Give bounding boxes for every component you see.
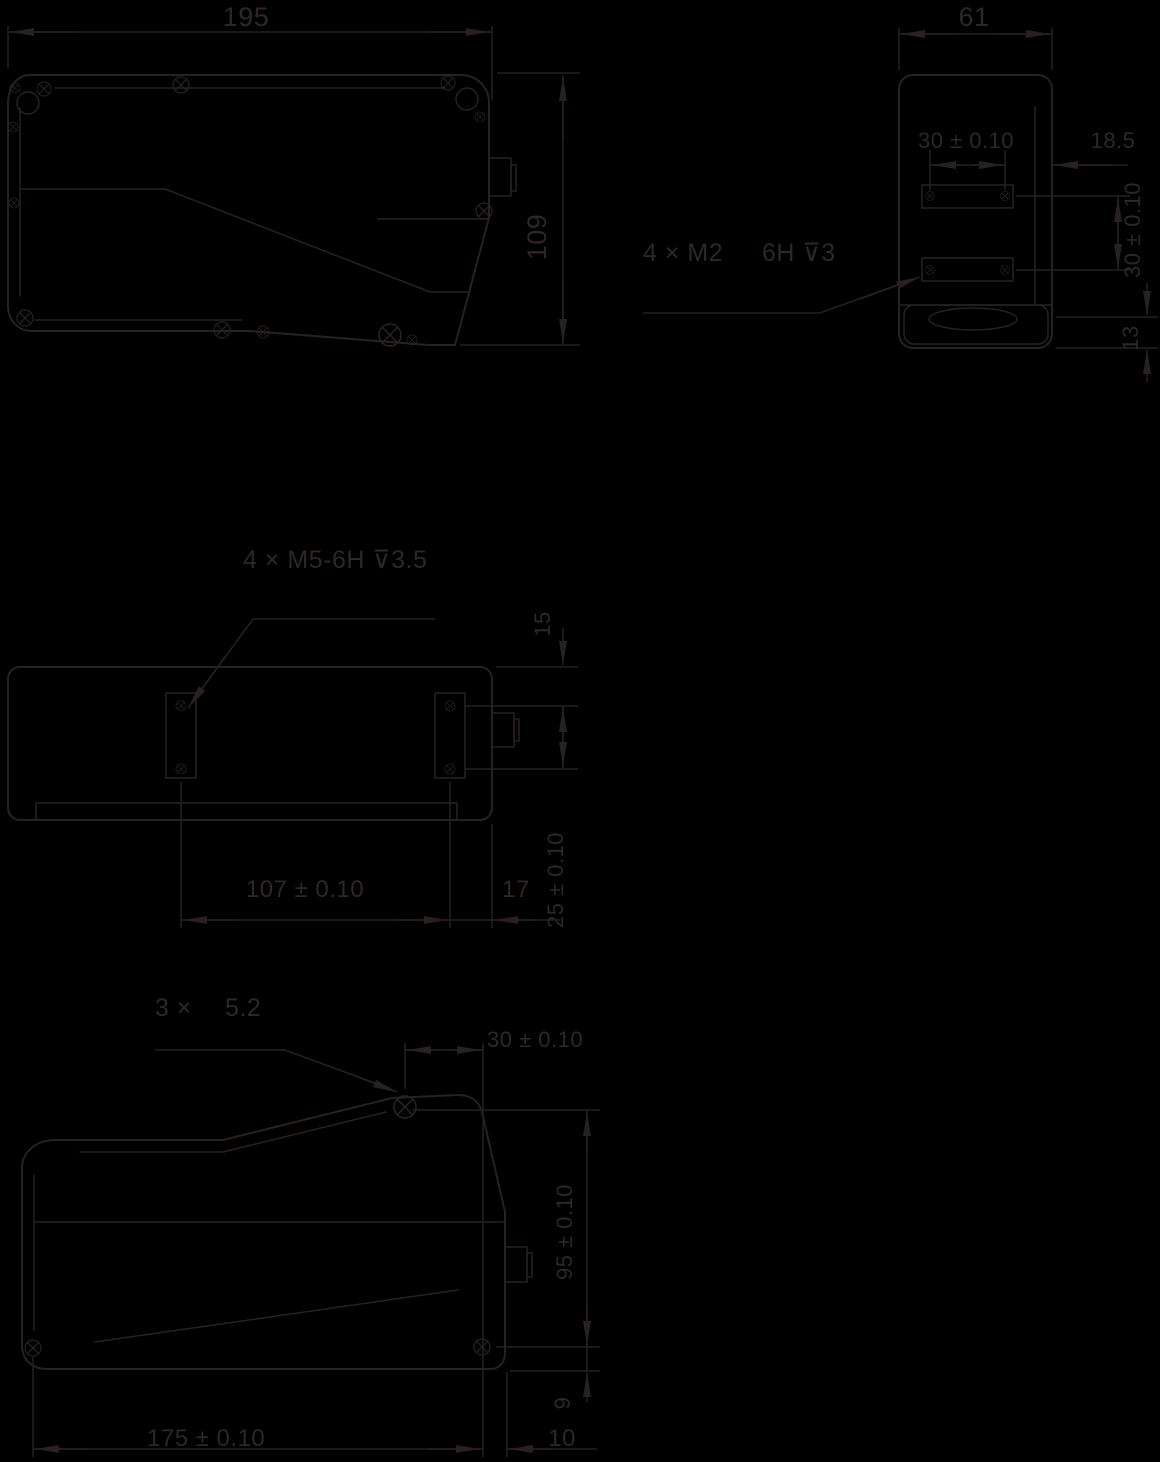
dim-height-95: 95 ± 0.10 xyxy=(413,1110,600,1347)
dim-30-label: 30 ± 0.10 xyxy=(487,1027,583,1052)
dim-18-5-label: 18.5 xyxy=(1091,128,1136,153)
dim-13-label: 13 xyxy=(1118,325,1143,350)
housing-outline xyxy=(22,1095,505,1369)
dim-length-175: 175 ± 0.10 xyxy=(33,1357,482,1457)
thread-label-m5: 4 × M5-6H ⊽3.5 xyxy=(243,546,427,574)
dim-base-offset-9: 9 xyxy=(510,1347,600,1409)
dim-30h-label: 30 ± 0.10 xyxy=(918,128,1014,153)
side-view-bottom: 3 × 5.2 30 ± 0.10 95 ± 0.10 9 xyxy=(22,994,600,1457)
dim-width-61: 61 xyxy=(899,2,1052,70)
connector xyxy=(489,158,511,196)
dim-hole-pitch-horizontal: 30 ± 0.10 xyxy=(918,128,1014,190)
dimension-drawing: 195 109 61 xyxy=(0,0,1160,1462)
dim-width-195: 195 xyxy=(8,2,492,100)
dim-61-label: 61 xyxy=(958,2,989,32)
dim-top-offset-15: 15 xyxy=(465,611,578,744)
dim-hole-pitch-horizontal-107: 107 ± 0.10 xyxy=(181,782,450,928)
dim-10-label: 10 xyxy=(548,1425,576,1452)
hole-callout: 3 × 5.2 xyxy=(155,994,397,1092)
side-view-top: 195 109 xyxy=(8,2,580,346)
thread-callout-m2: 4 × M2 6H ⊽3 xyxy=(643,239,920,313)
screw-heads xyxy=(8,76,492,346)
dim-17-label: 17 xyxy=(502,876,530,903)
dim-9-label: 9 xyxy=(550,1397,575,1410)
thread-label-m2: 4 × M2 xyxy=(643,239,723,267)
housing-outline xyxy=(8,75,489,345)
housing-outline xyxy=(899,75,1052,348)
thread-callout-m5: 4 × M5-6H ⊽3.5 xyxy=(188,546,435,708)
connector xyxy=(505,1247,527,1282)
dim-edge-offset-10: 10 xyxy=(507,1372,597,1457)
dim-30v-label: 30 ± 0.10 xyxy=(1120,182,1145,278)
mount-plate-bottom xyxy=(922,258,1013,281)
dim-height-109: 109 xyxy=(460,73,580,345)
hole-count-label: 3 × xyxy=(155,994,192,1022)
dim-window-offset-13: 13 xyxy=(1056,283,1158,382)
dim-25-label: 25 ± 0.10 xyxy=(543,832,568,928)
dim-15-label: 15 xyxy=(530,611,555,636)
mount-plate-top xyxy=(922,185,1013,208)
thread-label-m2-spec: 6H ⊽3 xyxy=(762,239,836,267)
dim-107-label: 107 ± 0.10 xyxy=(246,876,364,903)
dim-195-label: 195 xyxy=(223,2,270,32)
dim-95-label: 95 ± 0.10 xyxy=(552,1184,577,1280)
connector xyxy=(492,713,514,747)
end-view: 61 30 ± 0.10 18.5 30 ± 0.10 xyxy=(643,2,1158,382)
housing-outline xyxy=(8,667,492,820)
dim-109-label: 109 xyxy=(522,214,552,261)
dim-175-label: 175 ± 0.10 xyxy=(147,1425,265,1452)
dim-edge-offset-18-5: 18.5 xyxy=(1052,128,1135,165)
technical-drawing-page: 195 109 61 xyxy=(0,0,1160,1462)
hole-size-label: 5.2 xyxy=(225,994,261,1022)
top-view: 4 × M5-6H ⊽3.5 15 25 ± 0.10 107 ± 0.10 xyxy=(8,546,578,928)
optical-window xyxy=(929,308,1017,330)
